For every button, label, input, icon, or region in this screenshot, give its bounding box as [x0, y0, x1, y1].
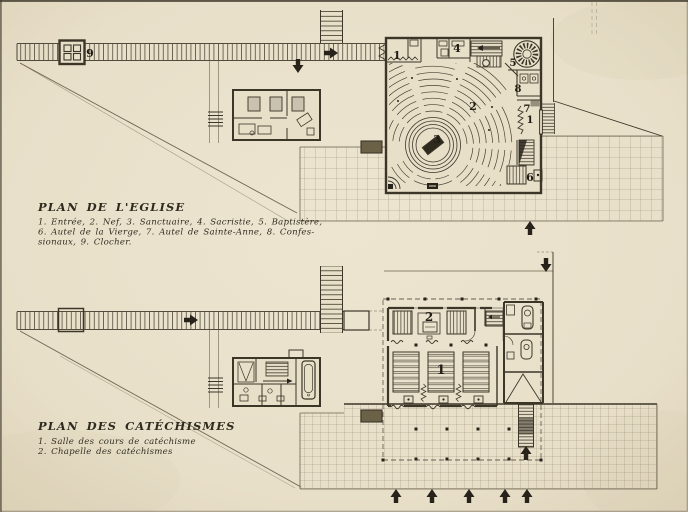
plaza-stairs	[519, 404, 534, 447]
label-clocher: 9	[86, 47, 94, 60]
church-building: 1 4 5 8 2 7 1 3 6	[363, 38, 543, 214]
label-salle: 1	[436, 363, 445, 378]
annex-building-upper	[233, 90, 320, 140]
label-autel-vierge: 6	[526, 171, 534, 184]
chapel-benches-right	[447, 311, 466, 334]
label-autel-sainte-anne: 7	[524, 104, 531, 115]
legend-eglise-title: PLAN DE L'EGLISE	[37, 200, 185, 214]
paved-plaza-lower	[300, 404, 657, 489]
label-confessionaux: 8	[515, 84, 522, 95]
legend-eglise-line3: sionaux, 9. Clocher.	[38, 238, 132, 248]
annex-building-lower	[233, 350, 320, 406]
chapel-benches-left	[393, 311, 412, 334]
stair-band-lower	[320, 266, 343, 333]
legend-eglise-line2: 6. Autel de la Vierge, 7. Autel de Saint…	[38, 228, 315, 238]
label-chapelle: 2	[425, 310, 433, 324]
label-sacristie: 4	[453, 42, 461, 55]
desk-rows-3	[463, 352, 489, 392]
legend-catechismes-line2: 2. Chapelle des catéchismes	[37, 446, 173, 457]
label-nef: 2	[469, 100, 477, 113]
label-entree-laterale: 1	[527, 115, 534, 126]
label-entree: 1	[393, 49, 401, 62]
chapel-stairs	[485, 308, 503, 326]
church-se-stairs	[517, 140, 534, 165]
legend-catechismes-title: PLAN DES CATÉCHISMES	[37, 419, 236, 433]
baptistery	[514, 41, 540, 67]
legend-catechismes-line1: 1. Salle des cours de catéchisme	[38, 436, 196, 447]
bell-tower	[60, 41, 85, 65]
choir-stair-block	[471, 41, 502, 56]
wardrobe-blocks	[248, 97, 304, 111]
desk-rows-1	[393, 352, 419, 392]
scanned-architectural-plate: 9	[0, 0, 688, 512]
stair-band-upper	[320, 10, 343, 43]
label-sanctuaire: 3	[433, 133, 441, 146]
legend-eglise-line1: 1. Entrée, 2. Nef, 3. Sanctuaire, 4. Sac…	[38, 217, 322, 228]
site-plan-drawing: 9	[0, 0, 688, 512]
altar-sainte-anne	[531, 101, 539, 106]
label-baptistere: 5	[510, 58, 517, 69]
virgin-chapel-benches	[507, 166, 526, 184]
